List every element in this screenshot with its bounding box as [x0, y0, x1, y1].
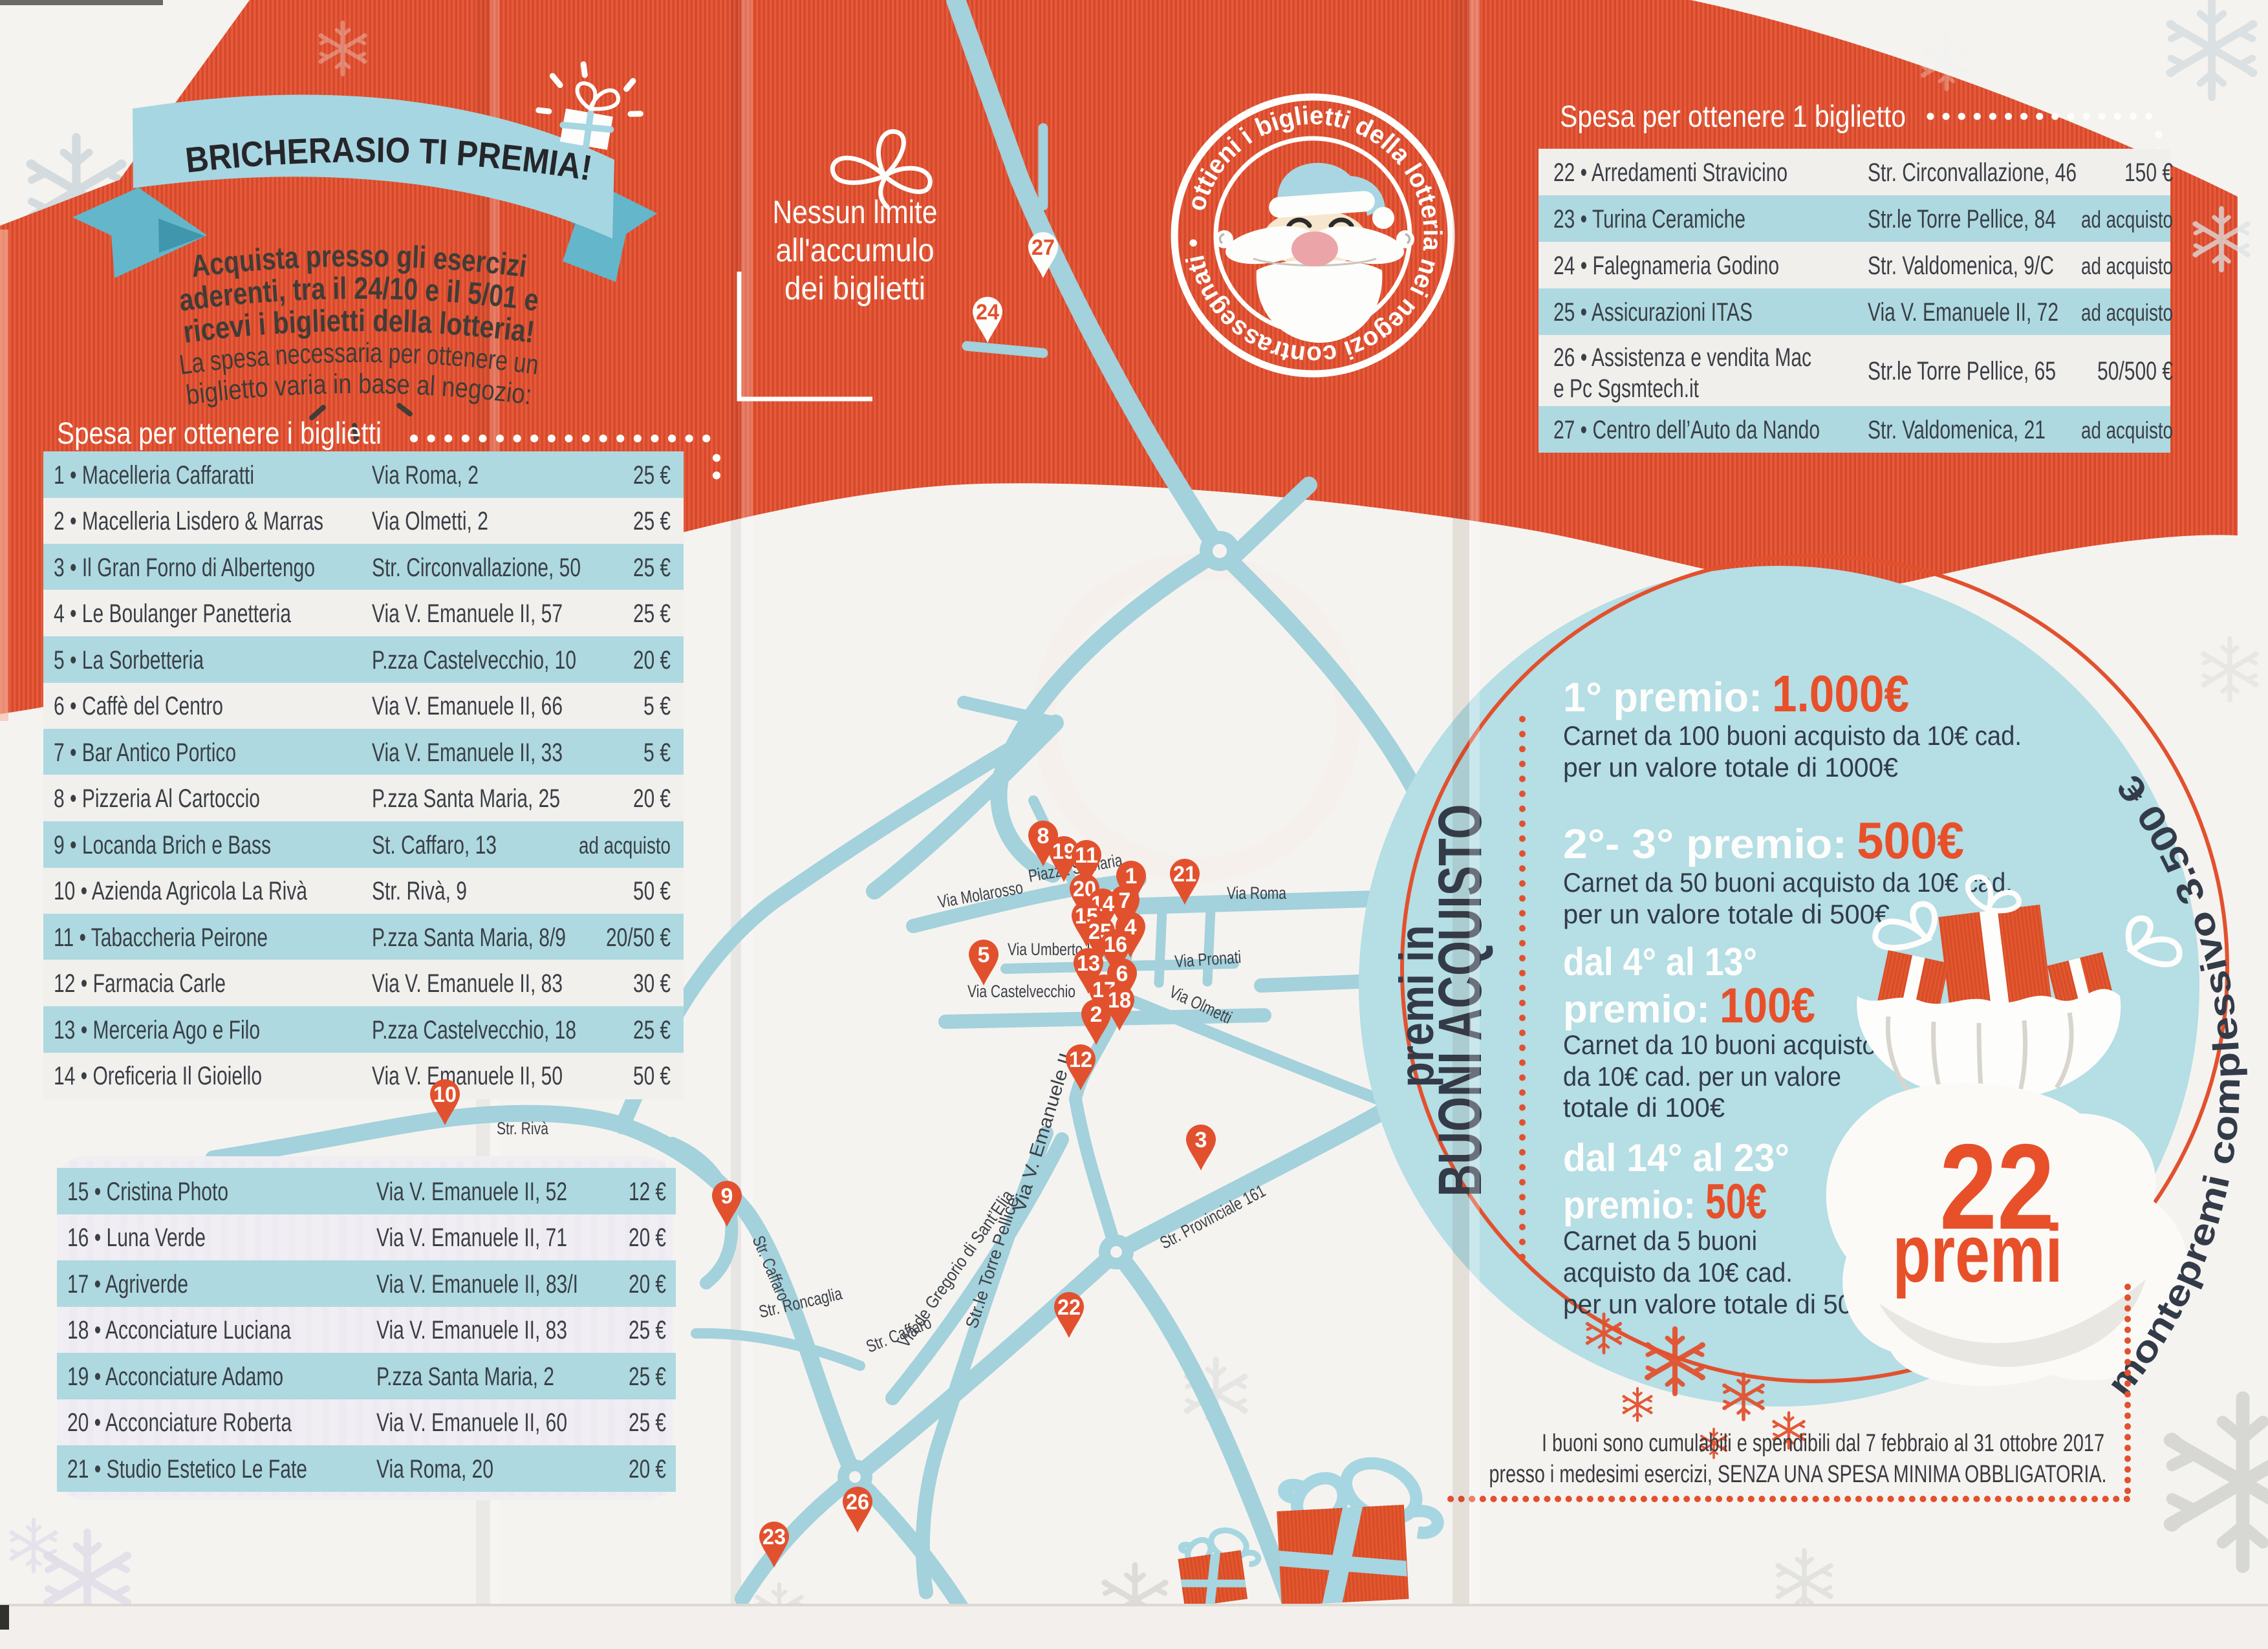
svg-text:18: 18 — [1108, 988, 1131, 1013]
svg-text:P.zza Santa Maria, 8/9: P.zza Santa Maria, 8/9 — [372, 923, 566, 952]
svg-text:Carnet da 10 buoni acquisto: Carnet da 10 buoni acquisto — [1563, 1029, 1876, 1060]
svg-text:7: 7 — [1119, 889, 1131, 913]
svg-text:Str. Valdomenica, 21: Str. Valdomenica, 21 — [1868, 416, 2046, 444]
svg-text:Str.le Torre Pellice, 65: Str.le Torre Pellice, 65 — [1868, 357, 2056, 385]
svg-text:Str. Rivà, 9: Str. Rivà, 9 — [372, 877, 467, 905]
svg-text:Via V. Emanuele II, 57: Via V. Emanuele II, 57 — [372, 599, 563, 628]
svg-text:Via V. Emanuele II, 66: Via V. Emanuele II, 66 — [372, 692, 563, 720]
svg-text:24: 24 — [976, 300, 999, 325]
svg-text:premi: premi — [1893, 1208, 2063, 1299]
svg-text:13: 13 — [1077, 951, 1100, 976]
svg-text:Str. Circonvallazione, 50: Str. Circonvallazione, 50 — [372, 554, 581, 582]
svg-text:16 • Luna Verde: 16 • Luna Verde — [67, 1223, 206, 1252]
svg-text:Carnet da 100 buoni acquisto d: Carnet da 100 buoni acquisto da 10€ cad. — [1563, 720, 2022, 751]
svg-text:24 • Falegnameria Godino: 24 • Falegnameria Godino — [1553, 252, 1779, 280]
svg-text:25 €: 25 € — [629, 1363, 666, 1391]
svg-text:P.zza Santa Maria, 2: P.zza Santa Maria, 2 — [376, 1363, 554, 1391]
svg-text:Via V. Emanuele II, 83: Via V. Emanuele II, 83 — [372, 969, 563, 998]
svg-text:ad acquisto: ad acquisto — [2081, 299, 2173, 326]
svg-text:9 • Locanda Brich e Bass: 9 • Locanda Brich e Bass — [54, 831, 271, 859]
svg-text:30 €: 30 € — [633, 969, 671, 998]
svg-text:27: 27 — [1031, 235, 1055, 260]
svg-text:11: 11 — [1075, 843, 1098, 868]
svg-text:2: 2 — [1090, 1002, 1103, 1027]
svg-text:ad acquisto: ad acquisto — [2081, 253, 2173, 279]
svg-text:Via V. Emanuele II, 50: Via V. Emanuele II, 50 — [372, 1062, 563, 1090]
svg-text:Via V. Emanuele II, 83/I: Via V. Emanuele II, 83/I — [376, 1270, 578, 1299]
svg-text:5 • La Sorbetteria: 5 • La Sorbetteria — [54, 646, 204, 674]
svg-text:25 €: 25 € — [633, 599, 671, 628]
svg-text:Via V. Emanuele II, 33: Via V. Emanuele II, 33 — [372, 738, 563, 767]
svg-text:ad acquisto: ad acquisto — [579, 832, 671, 859]
svg-text:ad acquisto: ad acquisto — [2081, 206, 2173, 233]
svg-text:Nessun limite: Nessun limite — [773, 194, 938, 230]
svg-text:21: 21 — [1173, 862, 1196, 887]
svg-text:23: 23 — [762, 1525, 786, 1549]
svg-text:3: 3 — [1195, 1128, 1207, 1152]
svg-text:Via V. Emanuele II, 72: Via V. Emanuele II, 72 — [1868, 298, 2058, 327]
svg-text:P.zza Santa Maria, 25: P.zza Santa Maria, 25 — [372, 784, 560, 813]
svg-text:1 • Macelleria Caffaratti: 1 • Macelleria Caffaratti — [54, 461, 254, 490]
svg-text:1° premio:: 1° premio: — [1563, 674, 1762, 720]
svg-text:25 €: 25 € — [629, 1408, 666, 1437]
svg-text:Str. Circonvallazione, 46: Str. Circonvallazione, 46 — [1868, 158, 2077, 187]
svg-text:presso i medesimi esercizi, SE: presso i medesimi esercizi, SENZA UNA SP… — [1489, 1461, 2107, 1488]
svg-text:12: 12 — [1069, 1048, 1092, 1072]
svg-text:premio:: premio: — [1563, 1183, 1696, 1227]
svg-text:2 • Macelleria Lisdero & Marra: 2 • Macelleria Lisdero & Marras — [54, 507, 323, 535]
svg-text:Spesa per ottenere i biglietti: Spesa per ottenere i biglietti — [57, 416, 382, 450]
svg-text:25 €: 25 € — [633, 507, 671, 535]
svg-text:da 10€ cad. per un valore: da 10€ cad. per un valore — [1563, 1061, 1841, 1092]
svg-text:Via V. Emanuele II, 83: Via V. Emanuele II, 83 — [376, 1316, 567, 1344]
svg-text:17 • Agriverde: 17 • Agriverde — [67, 1270, 188, 1299]
svg-text:e Pc Sgsmtech.it: e Pc Sgsmtech.it — [1553, 374, 1699, 403]
svg-text:Spesa per ottenere 1 biglietto: Spesa per ottenere 1 biglietto — [1560, 99, 1906, 133]
svg-text:Via Roma: Via Roma — [1227, 883, 1287, 903]
svg-text:27 • Centro dell’Auto da Nando: 27 • Centro dell’Auto da Nando — [1553, 416, 1820, 444]
svg-text:5: 5 — [978, 943, 990, 967]
svg-text:Via Roma, 20: Via Roma, 20 — [376, 1455, 493, 1483]
svg-text:7 • Bar Antico Portico: 7 • Bar Antico Portico — [54, 738, 236, 767]
svg-text:11 • Tabaccheria Peirone: 11 • Tabaccheria Peirone — [54, 923, 268, 952]
svg-text:500€: 500€ — [1857, 812, 1964, 869]
svg-text:13 • Merceria Ago e Filo: 13 • Merceria Ago e Filo — [54, 1016, 260, 1044]
svg-text:3 • Il Gran Forno di Alberteng: 3 • Il Gran Forno di Albertengo — [54, 554, 315, 582]
svg-text:50€: 50€ — [1705, 1174, 1767, 1229]
svg-text:22: 22 — [1057, 1295, 1081, 1320]
svg-text:Via V. Emanuele II, 60: Via V. Emanuele II, 60 — [376, 1408, 567, 1437]
svg-text:Via V. Emanuele II, 52: Via V. Emanuele II, 52 — [376, 1178, 567, 1206]
svg-text:8: 8 — [1037, 824, 1050, 848]
svg-text:22 • Arredamenti Stravicino: 22 • Arredamenti Stravicino — [1553, 158, 1787, 187]
svg-text:20 €: 20 € — [633, 784, 671, 813]
svg-text:12 €: 12 € — [629, 1178, 666, 1206]
svg-text:Str. Valdomenica, 9/C: Str. Valdomenica, 9/C — [1868, 252, 2054, 280]
svg-text:6 • Caffè del Centro: 6 • Caffè del Centro — [54, 692, 223, 720]
svg-text:21 • Studio Estetico Le Fate: 21 • Studio Estetico Le Fate — [67, 1455, 307, 1483]
svg-text:per un valore totale di 50€: per un valore totale di 50€ — [1563, 1289, 1867, 1319]
svg-text:4 • Le Boulanger Panetteria: 4 • Le Boulanger Panetteria — [54, 599, 292, 628]
svg-text:Via Olmetti, 2: Via Olmetti, 2 — [372, 507, 488, 535]
svg-text:Carnet da 50 buoni acquisto da: Carnet da 50 buoni acquisto da 10€ cad. — [1563, 867, 2013, 898]
svg-text:1: 1 — [1125, 864, 1138, 889]
svg-text:26: 26 — [846, 1490, 869, 1514]
svg-text:10 • Azienda Agricola La Rivà: 10 • Azienda Agricola La Rivà — [54, 877, 308, 905]
svg-text:50 €: 50 € — [633, 877, 671, 905]
svg-text:150 €: 150 € — [2124, 158, 2173, 187]
svg-text:25 • Assicurazioni ITAS: 25 • Assicurazioni ITAS — [1553, 298, 1753, 327]
svg-text:20 €: 20 € — [633, 646, 671, 674]
svg-text:15 • Cristina Photo: 15 • Cristina Photo — [67, 1178, 228, 1206]
svg-text:20 €: 20 € — [629, 1270, 666, 1299]
svg-text:20 €: 20 € — [629, 1223, 666, 1252]
svg-text:P.zza Castelvecchio, 10: P.zza Castelvecchio, 10 — [372, 646, 576, 674]
svg-text:dei biglietti: dei biglietti — [784, 270, 925, 307]
svg-text:50/500 €: 50/500 € — [2097, 357, 2173, 385]
svg-text:dal 4° al 13°: dal 4° al 13° — [1563, 940, 1757, 984]
svg-text:100€: 100€ — [1720, 978, 1815, 1033]
svg-text:acquisto da 10€ cad.: acquisto da 10€ cad. — [1563, 1257, 1793, 1288]
svg-text:per un valore totale di 500€: per un valore totale di 500€ — [1563, 899, 1890, 929]
svg-text:totale di 100€: totale di 100€ — [1563, 1092, 1725, 1123]
svg-text:Str. Rivà: Str. Rivà — [497, 1119, 549, 1138]
svg-text:Via V. Emanuele II, 71: Via V. Emanuele II, 71 — [376, 1223, 567, 1252]
svg-text:8 • Pizzeria Al Cartoccio: 8 • Pizzeria Al Cartoccio — [54, 784, 260, 813]
svg-text:18 • Acconciature Luciana: 18 • Acconciature Luciana — [67, 1316, 292, 1344]
svg-text:Via Roma, 2: Via Roma, 2 — [372, 461, 479, 490]
svg-text:Str. Caffaro: Str. Caffaro — [748, 1233, 793, 1304]
svg-text:19 • Acconciature Adamo: 19 • Acconciature Adamo — [67, 1363, 283, 1391]
svg-text:P.zza Castelvecchio, 18: P.zza Castelvecchio, 18 — [372, 1016, 576, 1044]
svg-text:20 €: 20 € — [629, 1455, 666, 1483]
svg-text:I buoni sono cumulabili e spen: I buoni sono cumulabili e spendibili dal… — [1542, 1430, 2104, 1457]
svg-text:26 • Assistenza e vendita Mac: 26 • Assistenza e vendita Mac — [1553, 343, 1811, 372]
svg-text:14 • Oreficeria Il Gioiello: 14 • Oreficeria Il Gioiello — [54, 1062, 262, 1090]
svg-text:all'accumulo: all'accumulo — [776, 232, 934, 268]
svg-text:10: 10 — [433, 1083, 457, 1107]
svg-text:5 €: 5 € — [643, 738, 671, 767]
svg-text:9: 9 — [721, 1184, 733, 1209]
svg-text:5 €: 5 € — [643, 692, 671, 720]
svg-text:St. Caffaro, 13: St. Caffaro, 13 — [372, 831, 497, 859]
svg-text:20/50 €: 20/50 € — [606, 923, 671, 952]
svg-text:25 €: 25 € — [633, 1016, 671, 1044]
svg-text:50 €: 50 € — [633, 1062, 671, 1090]
svg-text:16: 16 — [1104, 932, 1127, 957]
svg-text:dal 14° al 23°: dal 14° al 23° — [1563, 1136, 1789, 1180]
svg-text:Carnet da 5 buoni: Carnet da 5 buoni — [1563, 1225, 1757, 1256]
svg-text:20 • Acconciature Roberta: 20 • Acconciature Roberta — [67, 1408, 292, 1437]
svg-text:12 • Farmacia Carle: 12 • Farmacia Carle — [54, 969, 226, 998]
svg-text:23 • Turina Ceramiche: 23 • Turina Ceramiche — [1553, 205, 1745, 233]
svg-text:per un valore totale di 1000€: per un valore totale di 1000€ — [1563, 752, 1898, 782]
svg-text:25 €: 25 € — [633, 554, 671, 582]
svg-text:6: 6 — [1116, 962, 1129, 986]
svg-text:premio:: premio: — [1563, 987, 1710, 1031]
svg-text:25 €: 25 € — [629, 1316, 666, 1344]
svg-text:2°- 3° premio:: 2°- 3° premio: — [1563, 821, 1847, 867]
svg-text:25 €: 25 € — [633, 461, 671, 490]
svg-text:1.000€: 1.000€ — [1772, 665, 1909, 722]
svg-text:Str.le Torre Pellice, 84: Str.le Torre Pellice, 84 — [1868, 205, 2056, 233]
svg-text:ad acquisto: ad acquisto — [2081, 417, 2173, 444]
